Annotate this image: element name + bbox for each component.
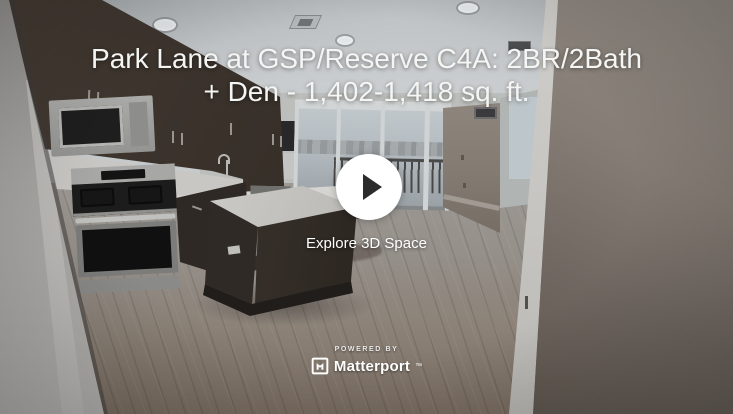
oven-drawer bbox=[79, 275, 180, 293]
wall-outlet bbox=[461, 155, 464, 160]
tour-title-line2: + Den - 1,402-1,418 sq. ft. bbox=[0, 75, 733, 108]
matterport-wordmark: Matterport bbox=[334, 358, 410, 375]
cooktop-grate bbox=[80, 188, 115, 208]
microwave-window bbox=[58, 105, 124, 148]
trademark-symbol: ™ bbox=[415, 363, 422, 370]
play-icon bbox=[363, 174, 382, 200]
matterport-branding[interactable]: Matterport ™ bbox=[0, 357, 733, 375]
tour-title-line1: Park Lane at GSP/Reserve C4A: 2BR/2Bath bbox=[0, 42, 733, 75]
matterport-logo-icon bbox=[311, 357, 329, 375]
door-handle bbox=[525, 296, 528, 309]
recessed-light bbox=[458, 3, 478, 13]
powered-by-label: POWERED BY bbox=[0, 346, 733, 353]
cabinet-handle bbox=[172, 131, 174, 143]
gas-range bbox=[71, 163, 181, 294]
cooktop-grate bbox=[128, 185, 163, 205]
sink-faucet bbox=[218, 154, 230, 164]
matterport-tour-poster[interactable]: Park Lane at GSP/Reserve C4A: 2BR/2Bath … bbox=[0, 0, 733, 414]
cabinet-handle bbox=[181, 133, 183, 145]
cabinet-handle bbox=[230, 123, 232, 135]
sink-faucet-stem bbox=[226, 160, 228, 176]
cabinet-handle bbox=[272, 134, 274, 145]
wall-vent bbox=[474, 107, 497, 119]
tour-title: Park Lane at GSP/Reserve C4A: 2BR/2Bath … bbox=[0, 42, 733, 108]
wall-outlet bbox=[463, 183, 466, 188]
microwave-keypad bbox=[129, 102, 149, 147]
play-button[interactable] bbox=[336, 154, 402, 220]
range-cooktop bbox=[72, 179, 178, 216]
cabinet-handle bbox=[280, 136, 282, 147]
baseboard bbox=[443, 194, 500, 211]
explore-3d-space-label[interactable]: Explore 3D Space bbox=[0, 235, 733, 252]
